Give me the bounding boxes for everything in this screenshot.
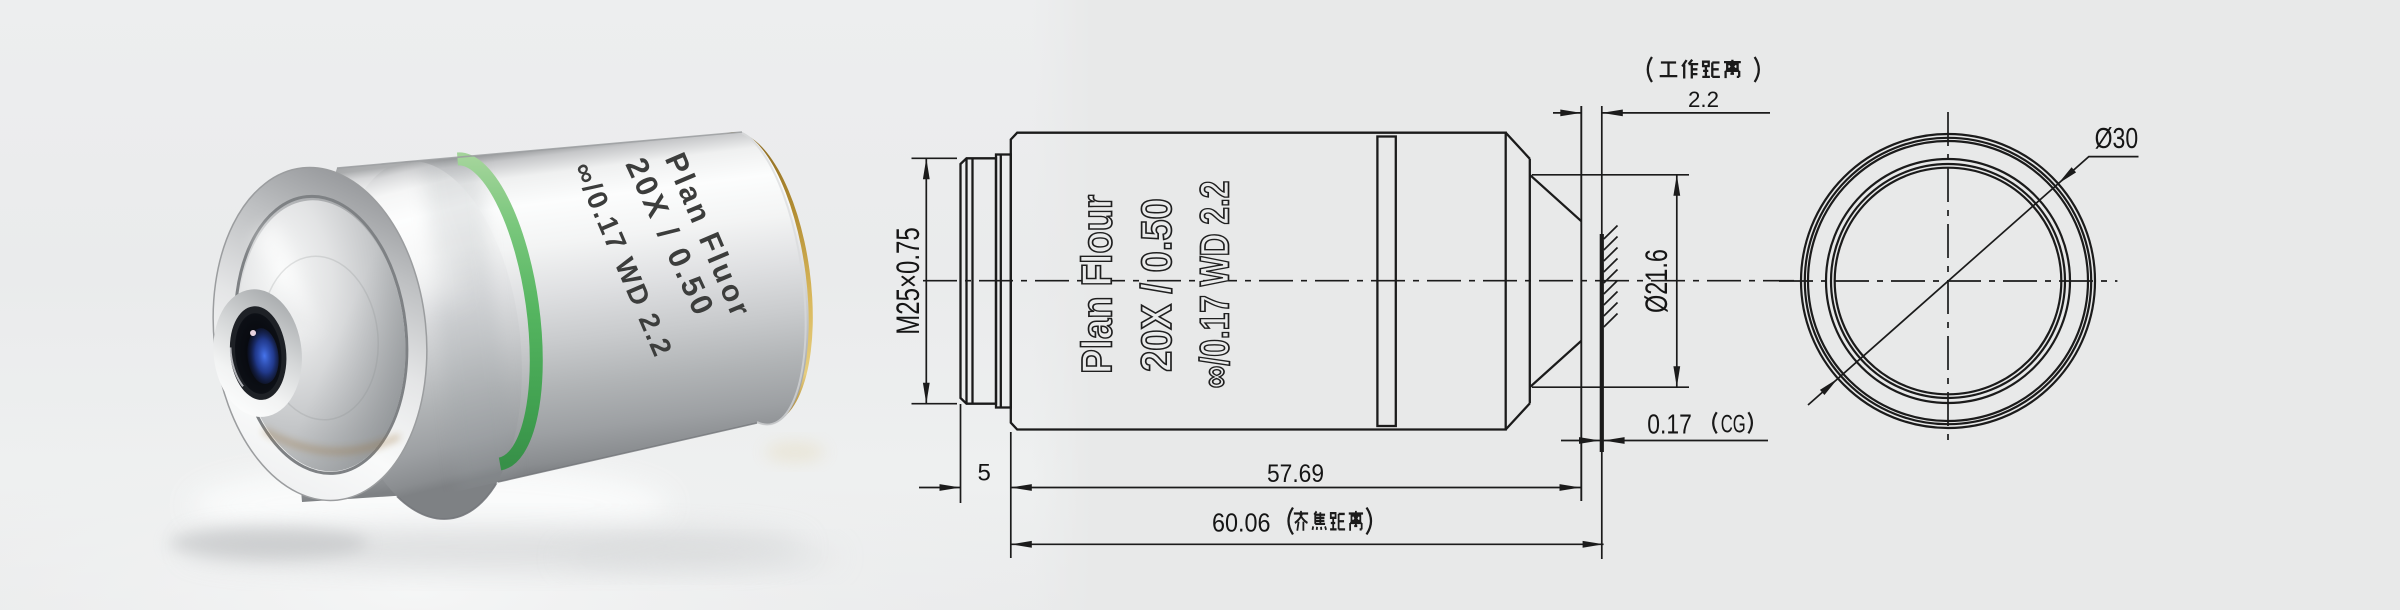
svg-text:Plan Flour: Plan Flour [1074, 194, 1122, 373]
svg-text:5: 5 [978, 459, 991, 486]
svg-text:0.17: 0.17 [1647, 409, 1692, 440]
svg-text:60.06: 60.06 [1212, 508, 1271, 538]
svg-text:CG: CG [1721, 411, 1746, 439]
svg-text:Ø21.6: Ø21.6 [1638, 249, 1674, 313]
svg-text:57.69: 57.69 [1267, 460, 1324, 488]
svg-text:M25×0.75: M25×0.75 [890, 227, 926, 335]
svg-text:2.2: 2.2 [1688, 87, 1719, 112]
svg-text:20X / 0.50: 20X / 0.50 [1133, 198, 1181, 372]
svg-text:Ø30: Ø30 [2095, 123, 2139, 155]
svg-text:∞/0.17 WD 2.2: ∞/0.17 WD 2.2 [1192, 181, 1238, 389]
